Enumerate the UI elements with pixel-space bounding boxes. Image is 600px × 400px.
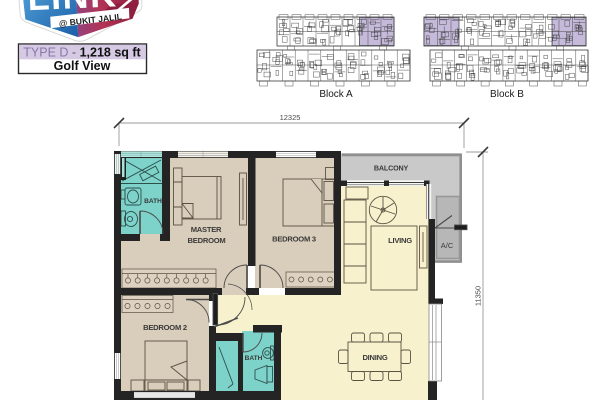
svg-text:12325: 12325 <box>280 113 301 122</box>
svg-text:TYPE D - 1,218 sq ft: TYPE D - 1,218 sq ft <box>23 46 141 60</box>
svg-text:Block B: Block B <box>490 89 524 100</box>
svg-text:11350: 11350 <box>474 286 483 306</box>
svg-text:BEDROOM 3: BEDROOM 3 <box>272 235 316 244</box>
svg-text:BATH: BATH <box>245 355 263 362</box>
svg-text:BATH: BATH <box>144 198 162 205</box>
svg-text:BEDROOM 2: BEDROOM 2 <box>143 323 187 332</box>
svg-text:BALCONY: BALCONY <box>374 164 409 173</box>
svg-text:Block A: Block A <box>319 89 353 100</box>
svg-text:BEDROOM: BEDROOM <box>188 236 226 245</box>
svg-text:DINING: DINING <box>362 353 387 362</box>
svg-text:MASTER: MASTER <box>191 225 222 234</box>
svg-text:Golf View: Golf View <box>54 59 111 73</box>
svg-text:LIVING: LIVING <box>388 236 412 245</box>
svg-text:A/C: A/C <box>441 241 454 250</box>
